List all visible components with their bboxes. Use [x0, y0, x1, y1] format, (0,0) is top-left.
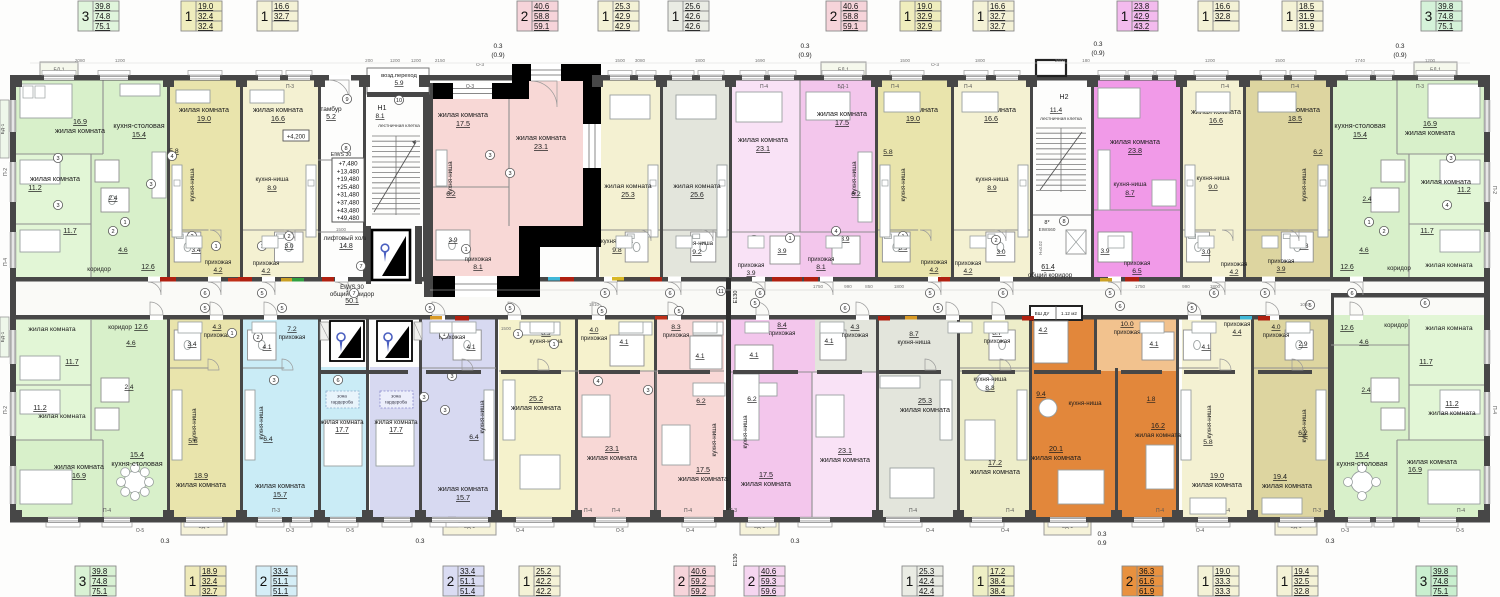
- svg-text:59.6: 59.6: [761, 587, 776, 596]
- svg-text:EIWS60: EIWS60: [1039, 227, 1056, 232]
- svg-text:19.0: 19.0: [1210, 471, 1224, 480]
- svg-text:850: 850: [865, 284, 873, 289]
- svg-text:3.0: 3.0: [284, 243, 293, 250]
- svg-text:990: 990: [844, 284, 852, 289]
- svg-text:прихожая: прихожая: [204, 333, 231, 339]
- svg-text:прихожая: прихожая: [955, 261, 982, 267]
- svg-text:жилая комната: жилая комната: [253, 105, 303, 114]
- svg-text:жилая комната: жилая комната: [587, 453, 637, 462]
- svg-text:3.9: 3.9: [448, 237, 457, 244]
- svg-text:жилая комната: жилая комната: [38, 413, 86, 420]
- svg-text:П-4: П-4: [1291, 84, 1299, 90]
- svg-text:1: 1: [1202, 574, 1210, 589]
- svg-text:жилая комната: жилая комната: [374, 419, 418, 426]
- svg-text:1750: 1750: [1135, 284, 1146, 289]
- svg-text:1: 1: [977, 9, 985, 24]
- svg-text:5: 5: [260, 291, 263, 297]
- svg-text:кухня-ниша: кухня-ниша: [975, 176, 1009, 183]
- svg-text:7: 7: [359, 264, 362, 270]
- svg-text:6: 6: [1350, 291, 1353, 297]
- svg-text:23.1: 23.1: [838, 446, 852, 455]
- svg-text:3: 3: [82, 9, 90, 24]
- svg-text:лестничная клетка: лестничная клетка: [1040, 117, 1082, 122]
- svg-text:8.9: 8.9: [267, 185, 277, 192]
- svg-text:4.0: 4.0: [1271, 324, 1280, 331]
- svg-text:4.1: 4.1: [1201, 344, 1210, 351]
- svg-text:42.4: 42.4: [919, 587, 935, 596]
- svg-text:6.5: 6.5: [1132, 268, 1142, 275]
- svg-text:11.2: 11.2: [1457, 185, 1470, 194]
- svg-text:прихожая: прихожая: [1114, 330, 1141, 336]
- svg-text:жилая комната: жилая комната: [438, 110, 488, 119]
- svg-text:4.1: 4.1: [749, 352, 758, 359]
- svg-text:+49,480: +49,480: [337, 215, 360, 222]
- svg-text:39.8: 39.8: [92, 567, 107, 576]
- svg-text:5.8: 5.8: [188, 438, 198, 445]
- svg-text:11.2: 11.2: [28, 183, 41, 192]
- svg-text:жилая комната: жилая комната: [179, 105, 229, 114]
- svg-text:32.4: 32.4: [202, 577, 218, 586]
- svg-text:16.6: 16.6: [1209, 116, 1223, 125]
- svg-text:4.1: 4.1: [262, 344, 271, 351]
- svg-text:1: 1: [214, 244, 217, 250]
- svg-text:6.2: 6.2: [1298, 430, 1308, 437]
- svg-text:42.6: 42.6: [685, 12, 700, 21]
- svg-text:42.2: 42.2: [536, 577, 551, 586]
- svg-text:1: 1: [123, 220, 126, 226]
- svg-text:2600: 2600: [1055, 58, 1066, 63]
- svg-text:59.1: 59.1: [843, 22, 858, 31]
- svg-text:5.8: 5.8: [883, 149, 893, 156]
- svg-text:2: 2: [260, 574, 268, 589]
- svg-text:8.9: 8.9: [987, 185, 997, 192]
- svg-text:40.6: 40.6: [761, 567, 776, 576]
- svg-text:4.6: 4.6: [126, 340, 136, 347]
- svg-text:3.4: 3.4: [187, 341, 196, 348]
- svg-text:17.5: 17.5: [835, 118, 849, 127]
- svg-text:П-3: П-3: [272, 508, 280, 514]
- svg-text:1: 1: [1202, 9, 1210, 24]
- svg-text:зона: зона: [391, 394, 401, 399]
- svg-text:жилая комната: жилая комната: [511, 403, 561, 412]
- svg-text:кухня-ниша: кухня-ниша: [742, 415, 749, 449]
- svg-text:1800: 1800: [1210, 284, 1221, 289]
- svg-text:1: 1: [788, 236, 791, 242]
- svg-text:4.6: 4.6: [118, 247, 128, 254]
- svg-text:17.5: 17.5: [696, 465, 710, 474]
- svg-text:8.4: 8.4: [777, 322, 787, 329]
- svg-text:1500: 1500: [900, 58, 911, 63]
- svg-text:51.1: 51.1: [460, 577, 475, 586]
- svg-text:жилая комната: жилая комната: [673, 183, 721, 190]
- svg-text:прихожая: прихожая: [842, 333, 869, 339]
- svg-text:25.3: 25.3: [919, 567, 934, 576]
- svg-text:4.6: 4.6: [1359, 339, 1369, 346]
- svg-text:4: 4: [1445, 203, 1448, 209]
- svg-text:3.9: 3.9: [1100, 248, 1109, 255]
- svg-text:1200: 1200: [115, 58, 126, 63]
- svg-text:кухня-столовая: кухня-столовая: [1336, 459, 1387, 468]
- svg-text:5.9: 5.9: [394, 80, 403, 87]
- svg-text:33.3: 33.3: [1215, 577, 1230, 586]
- svg-text:1800: 1800: [894, 284, 905, 289]
- svg-text:Н1: Н1: [378, 105, 387, 112]
- svg-text:жилая комната: жилая комната: [900, 405, 950, 414]
- svg-text:39.8: 39.8: [1438, 2, 1453, 11]
- svg-text:32.9: 32.9: [917, 12, 932, 21]
- svg-text:23.8: 23.8: [1128, 146, 1142, 155]
- svg-text:16.9: 16.9: [1423, 119, 1437, 128]
- svg-text:жилая комната: жилая комната: [438, 484, 488, 493]
- svg-text:2: 2: [111, 229, 114, 235]
- svg-text:32.4: 32.4: [198, 22, 214, 31]
- svg-text:жилая комната: жилая комната: [1110, 137, 1160, 146]
- svg-text:2: 2: [521, 9, 529, 24]
- svg-text:3: 3: [508, 171, 511, 177]
- svg-text:5: 5: [203, 306, 206, 312]
- svg-text:прихожая: прихожая: [253, 261, 280, 267]
- svg-text:3: 3: [1449, 156, 1452, 162]
- svg-text:жилая комната: жилая комната: [738, 135, 788, 144]
- svg-text:зона: зона: [337, 394, 347, 399]
- svg-text:жилая комната: жилая комната: [28, 326, 76, 333]
- svg-text:31.9: 31.9: [1299, 22, 1314, 31]
- svg-text:17.5: 17.5: [456, 119, 470, 128]
- svg-text:18.5: 18.5: [1299, 2, 1315, 11]
- svg-text:4.2: 4.2: [1038, 327, 1047, 334]
- svg-text:50.1: 50.1: [345, 298, 359, 305]
- svg-text:О-5: О-5: [136, 528, 145, 534]
- svg-text:П-4: П-4: [103, 508, 111, 514]
- svg-text:2.4: 2.4: [108, 195, 117, 202]
- svg-text:51.4: 51.4: [460, 587, 476, 596]
- svg-text:4.3: 4.3: [212, 324, 221, 331]
- svg-text:1: 1: [1121, 9, 1129, 24]
- svg-text:кухня-ниша: кухня-ниша: [897, 339, 931, 346]
- svg-text:П-3: П-3: [286, 84, 294, 90]
- svg-text:5: 5: [508, 306, 511, 312]
- svg-text:38.4: 38.4: [990, 587, 1006, 596]
- svg-text:1: 1: [464, 247, 467, 253]
- svg-text:23.1: 23.1: [756, 144, 770, 153]
- svg-text:жилая комната: жилая комната: [741, 479, 791, 488]
- svg-text:ВШ ДУ: ВШ ДУ: [1035, 311, 1050, 316]
- svg-text:19.0: 19.0: [197, 114, 211, 123]
- svg-text:32.8: 32.8: [1294, 587, 1309, 596]
- svg-text:кухня-ниша: кухня-ниша: [447, 161, 454, 195]
- svg-text:6: 6: [1212, 291, 1215, 297]
- svg-text:6.4: 6.4: [469, 434, 479, 441]
- svg-text:17.5: 17.5: [759, 470, 773, 479]
- svg-text:4.2: 4.2: [929, 267, 938, 274]
- svg-text:11.4: 11.4: [1050, 107, 1063, 114]
- svg-text:4: 4: [834, 229, 837, 235]
- svg-text:6: 6: [668, 291, 671, 297]
- svg-text:8.7: 8.7: [909, 331, 919, 338]
- svg-text:6.2: 6.2: [1313, 149, 1323, 156]
- svg-text:40.6: 40.6: [534, 2, 549, 11]
- svg-text:1500: 1500: [501, 326, 512, 331]
- svg-text:прихожая: прихожая: [1268, 259, 1295, 265]
- svg-text:18.9: 18.9: [202, 567, 217, 576]
- svg-text:0.3: 0.3: [1097, 531, 1106, 538]
- svg-text:6: 6: [336, 378, 339, 384]
- svg-text:4.3: 4.3: [850, 324, 859, 331]
- svg-text:25.6: 25.6: [690, 192, 704, 199]
- svg-text:3080: 3080: [635, 58, 646, 63]
- svg-text:15.4: 15.4: [130, 450, 144, 459]
- svg-text:6.4: 6.4: [263, 436, 273, 443]
- svg-text:2150: 2150: [435, 58, 446, 63]
- svg-text:36.3: 36.3: [1139, 567, 1154, 576]
- svg-text:1: 1: [672, 9, 680, 24]
- svg-text:прихожая: прихожая: [1221, 262, 1248, 268]
- svg-text:+19,480: +19,480: [337, 176, 360, 183]
- svg-text:6: 6: [1423, 301, 1426, 307]
- svg-text:59.3: 59.3: [761, 577, 776, 586]
- svg-text:жилая комната: жилая комната: [1262, 481, 1312, 490]
- svg-text:кухня-ниша: кухня-ниша: [479, 400, 486, 434]
- svg-text:П-4: П-4: [1457, 508, 1465, 514]
- svg-text:кухня-ниша: кухня-ниша: [189, 168, 196, 202]
- svg-text:лифтовый холл: лифтовый холл: [324, 235, 369, 242]
- svg-text:75.1: 75.1: [92, 587, 107, 596]
- svg-text:прихожая: прихожая: [1263, 333, 1290, 339]
- svg-text:2.4: 2.4: [1361, 387, 1370, 394]
- svg-text:1: 1: [1367, 220, 1370, 226]
- svg-text:4.0: 4.0: [589, 327, 598, 334]
- svg-text:кухня-столовая: кухня-столовая: [1334, 121, 1385, 130]
- svg-text:прихожая: прихожая: [465, 257, 492, 263]
- svg-text:жилая комната: жилая комната: [1192, 480, 1242, 489]
- svg-text:кухня-ниша: кухня-ниша: [851, 161, 858, 195]
- svg-text:1500: 1500: [615, 58, 626, 63]
- svg-text:жилая комната: жилая комната: [1425, 262, 1473, 269]
- svg-text:0.3: 0.3: [790, 538, 799, 545]
- svg-text:1500: 1500: [336, 227, 347, 232]
- svg-text:4.1: 4.1: [695, 353, 704, 360]
- svg-text:4: 4: [596, 379, 599, 385]
- svg-text:1200: 1200: [1425, 58, 1436, 63]
- svg-text:3.9: 3.9: [746, 270, 755, 277]
- svg-text:1040: 1040: [1300, 302, 1311, 307]
- svg-text:3: 3: [1425, 9, 1433, 24]
- svg-text:П-4: П-4: [964, 84, 972, 90]
- svg-text:3: 3: [450, 374, 453, 380]
- svg-text:жилая комната: жилая комната: [1425, 325, 1473, 332]
- svg-text:8: 8: [1062, 219, 1065, 225]
- svg-text:кухня-ниша: кухня-ниша: [1196, 175, 1230, 182]
- svg-text:1: 1: [552, 342, 555, 348]
- svg-text:П-4: П-4: [684, 508, 692, 514]
- svg-text:25.3: 25.3: [621, 192, 635, 199]
- svg-text:прихожая: прихожая: [663, 333, 690, 339]
- svg-text:42.9: 42.9: [1134, 12, 1149, 21]
- svg-text:коридор: коридор: [1384, 322, 1408, 329]
- svg-text:8.3: 8.3: [985, 385, 995, 392]
- svg-text:П-4: П-4: [1221, 84, 1229, 90]
- svg-text:П-4: П-4: [3, 258, 9, 266]
- svg-text:51.1: 51.1: [273, 587, 288, 596]
- svg-text:0.3: 0.3: [800, 43, 809, 50]
- svg-text:жилая комната: жилая комната: [604, 183, 652, 190]
- svg-text:1: 1: [904, 9, 912, 24]
- svg-text:2: 2: [447, 574, 455, 589]
- svg-text:П-4: П-4: [1491, 406, 1497, 414]
- svg-text:32.7: 32.7: [202, 587, 217, 596]
- svg-text:5: 5: [1263, 291, 1266, 297]
- svg-text:коридор: коридор: [87, 266, 111, 273]
- svg-text:42.9: 42.9: [615, 12, 630, 21]
- svg-text:3: 3: [272, 378, 275, 384]
- svg-text:жилая комната: жилая комната: [255, 481, 305, 490]
- svg-text:О-4: О-4: [1001, 528, 1010, 534]
- svg-text:12.6: 12.6: [134, 324, 148, 331]
- svg-text:23.1: 23.1: [534, 142, 548, 151]
- svg-text:1500: 1500: [1275, 58, 1286, 63]
- svg-text:+37,480: +37,480: [337, 200, 360, 207]
- svg-text:кухня-ниша: кухня-ниша: [1068, 400, 1102, 407]
- svg-text:жилая комната: жилая комната: [1405, 128, 1455, 137]
- svg-text:0.3: 0.3: [415, 538, 424, 545]
- svg-text:31.9: 31.9: [1299, 12, 1314, 21]
- svg-text:5: 5: [677, 309, 680, 315]
- svg-text:14.8: 14.8: [339, 243, 353, 250]
- svg-text:2: 2: [1126, 574, 1134, 589]
- svg-text:6: 6: [1001, 291, 1004, 297]
- svg-text:1: 1: [230, 331, 233, 337]
- svg-text:7.2: 7.2: [287, 326, 297, 333]
- svg-text:19.0: 19.0: [917, 2, 933, 11]
- svg-text:9: 9: [345, 97, 348, 103]
- svg-text:6.2: 6.2: [696, 398, 706, 405]
- svg-text:32.7: 32.7: [990, 12, 1005, 21]
- svg-text:38.4: 38.4: [990, 577, 1006, 586]
- svg-text:прихожая: прихожая: [205, 260, 232, 266]
- svg-text:33.4: 33.4: [273, 567, 289, 576]
- svg-text:5: 5: [936, 306, 939, 312]
- svg-text:О-3: О-3: [1341, 528, 1350, 534]
- svg-text:17.2: 17.2: [990, 567, 1005, 576]
- svg-text:жилая комната: жилая комната: [820, 455, 870, 464]
- svg-text:23.8: 23.8: [1134, 2, 1149, 11]
- svg-text:5: 5: [1108, 291, 1111, 297]
- svg-text:(0.9): (0.9): [1393, 52, 1406, 59]
- svg-text:4.1: 4.1: [824, 338, 833, 345]
- svg-text:П-2: П-2: [1491, 186, 1497, 194]
- svg-text:18.9: 18.9: [194, 471, 208, 480]
- svg-text:кухня-ниша: кухня-ниша: [255, 176, 289, 183]
- svg-text:прихожая: прихожая: [1224, 322, 1251, 328]
- svg-text:2.4: 2.4: [1362, 196, 1371, 203]
- svg-text:19.4: 19.4: [1294, 567, 1310, 576]
- svg-text:О-5: О-5: [1456, 528, 1465, 534]
- svg-text:2: 2: [830, 9, 838, 24]
- svg-text:коридор: коридор: [1387, 265, 1411, 272]
- svg-text:П-4: П-4: [1156, 508, 1164, 514]
- svg-text:Н=0.02: Н=0.02: [1038, 241, 1043, 255]
- svg-text:61.6: 61.6: [1139, 577, 1154, 586]
- svg-text:Е130: Е130: [733, 554, 739, 567]
- svg-text:200: 200: [365, 58, 373, 63]
- svg-text:74.8: 74.8: [92, 577, 107, 586]
- svg-text:6: 6: [203, 291, 206, 297]
- svg-text:П-2: П-2: [3, 168, 9, 176]
- svg-text:3: 3: [443, 408, 446, 414]
- svg-text:П-2: П-2: [3, 406, 9, 414]
- svg-text:1200: 1200: [411, 58, 422, 63]
- svg-text:кухня-ниша: кухня-ниша: [1301, 409, 1308, 443]
- svg-text:2: 2: [287, 234, 290, 240]
- svg-text:16.9: 16.9: [73, 117, 87, 126]
- svg-text:33.3: 33.3: [1215, 587, 1230, 596]
- svg-text:7: 7: [352, 291, 355, 297]
- svg-text:25.2: 25.2: [529, 394, 543, 403]
- svg-text:11.7: 11.7: [1419, 357, 1432, 366]
- svg-text:2.9: 2.9: [1298, 341, 1307, 348]
- svg-text:6: 6: [758, 291, 761, 297]
- svg-text:жилая комната: жилая комната: [1428, 410, 1476, 417]
- svg-text:42.9: 42.9: [615, 22, 630, 31]
- svg-text:5: 5: [600, 309, 603, 315]
- svg-text:П-4: П-4: [891, 84, 899, 90]
- svg-text:4.1: 4.1: [466, 344, 475, 351]
- svg-text:61.9: 61.9: [1139, 587, 1154, 596]
- svg-text:42.6: 42.6: [685, 22, 700, 31]
- svg-text:33.4: 33.4: [460, 567, 476, 576]
- svg-text:1.8: 1.8: [1147, 396, 1156, 403]
- svg-text:5: 5: [428, 306, 431, 312]
- svg-text:2.4: 2.4: [124, 384, 133, 391]
- svg-text:(0.9): (0.9): [798, 52, 811, 59]
- svg-text:15.7: 15.7: [273, 490, 287, 499]
- svg-text:4.1: 4.1: [1149, 341, 1158, 348]
- svg-text:тамбур: тамбур: [320, 105, 342, 113]
- svg-text:2080: 2080: [75, 58, 86, 63]
- svg-text:2: 2: [256, 335, 259, 341]
- svg-text:4: 4: [170, 154, 173, 160]
- svg-text:1750: 1750: [813, 284, 824, 289]
- svg-text:1: 1: [189, 574, 197, 589]
- svg-text:1690: 1690: [755, 58, 766, 63]
- svg-text:59.1: 59.1: [534, 22, 549, 31]
- svg-text:прихожая: прихожая: [738, 263, 765, 269]
- svg-text:15.4: 15.4: [132, 130, 146, 139]
- svg-text:5: 5: [928, 291, 931, 297]
- svg-text:1800: 1800: [695, 58, 706, 63]
- svg-text:11.7: 11.7: [65, 357, 78, 366]
- svg-text:3.9: 3.9: [1276, 266, 1285, 273]
- svg-text:прихожая: прихожая: [581, 336, 608, 342]
- svg-text:кухня-ниша: кухня-ниша: [900, 168, 907, 202]
- svg-text:5: 5: [1190, 306, 1193, 312]
- svg-text:58.8: 58.8: [534, 12, 549, 21]
- svg-text:8.1: 8.1: [473, 264, 483, 271]
- svg-text:61.4: 61.4: [1041, 264, 1055, 271]
- svg-text:42.4: 42.4: [919, 577, 935, 586]
- svg-text:25.3: 25.3: [615, 2, 630, 11]
- svg-text:4.2: 4.2: [1229, 269, 1238, 276]
- svg-text:10: 10: [396, 98, 402, 104]
- svg-text:42.2: 42.2: [536, 587, 551, 596]
- svg-text:15.4: 15.4: [1355, 450, 1369, 459]
- svg-text:1: 1: [523, 574, 531, 589]
- svg-text:1810: 1810: [589, 302, 600, 307]
- svg-text:75.1: 75.1: [1433, 587, 1448, 596]
- svg-text:О-4: О-4: [926, 528, 935, 534]
- svg-text:1: 1: [1286, 9, 1294, 24]
- svg-text:16.6: 16.6: [990, 2, 1005, 11]
